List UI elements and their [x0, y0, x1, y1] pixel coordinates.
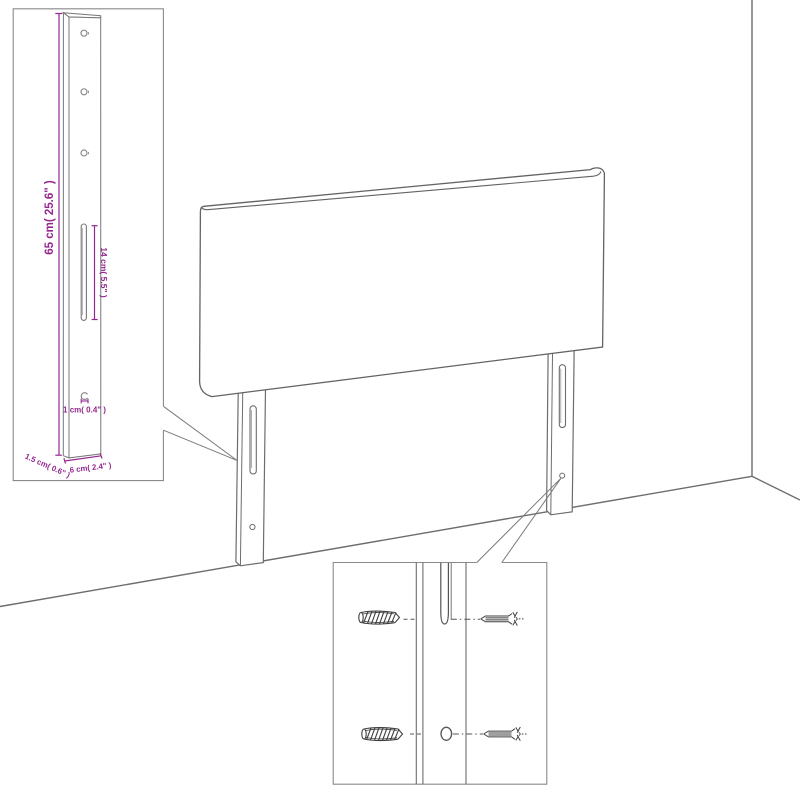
svg-text:65 cm( 25.6" ): 65 cm( 25.6" ) — [44, 180, 56, 255]
svg-text:14 cm( 5.5" ): 14 cm( 5.5" ) — [99, 247, 109, 298]
svg-text:1 cm( 0.4" ): 1 cm( 0.4" ) — [63, 406, 106, 415]
